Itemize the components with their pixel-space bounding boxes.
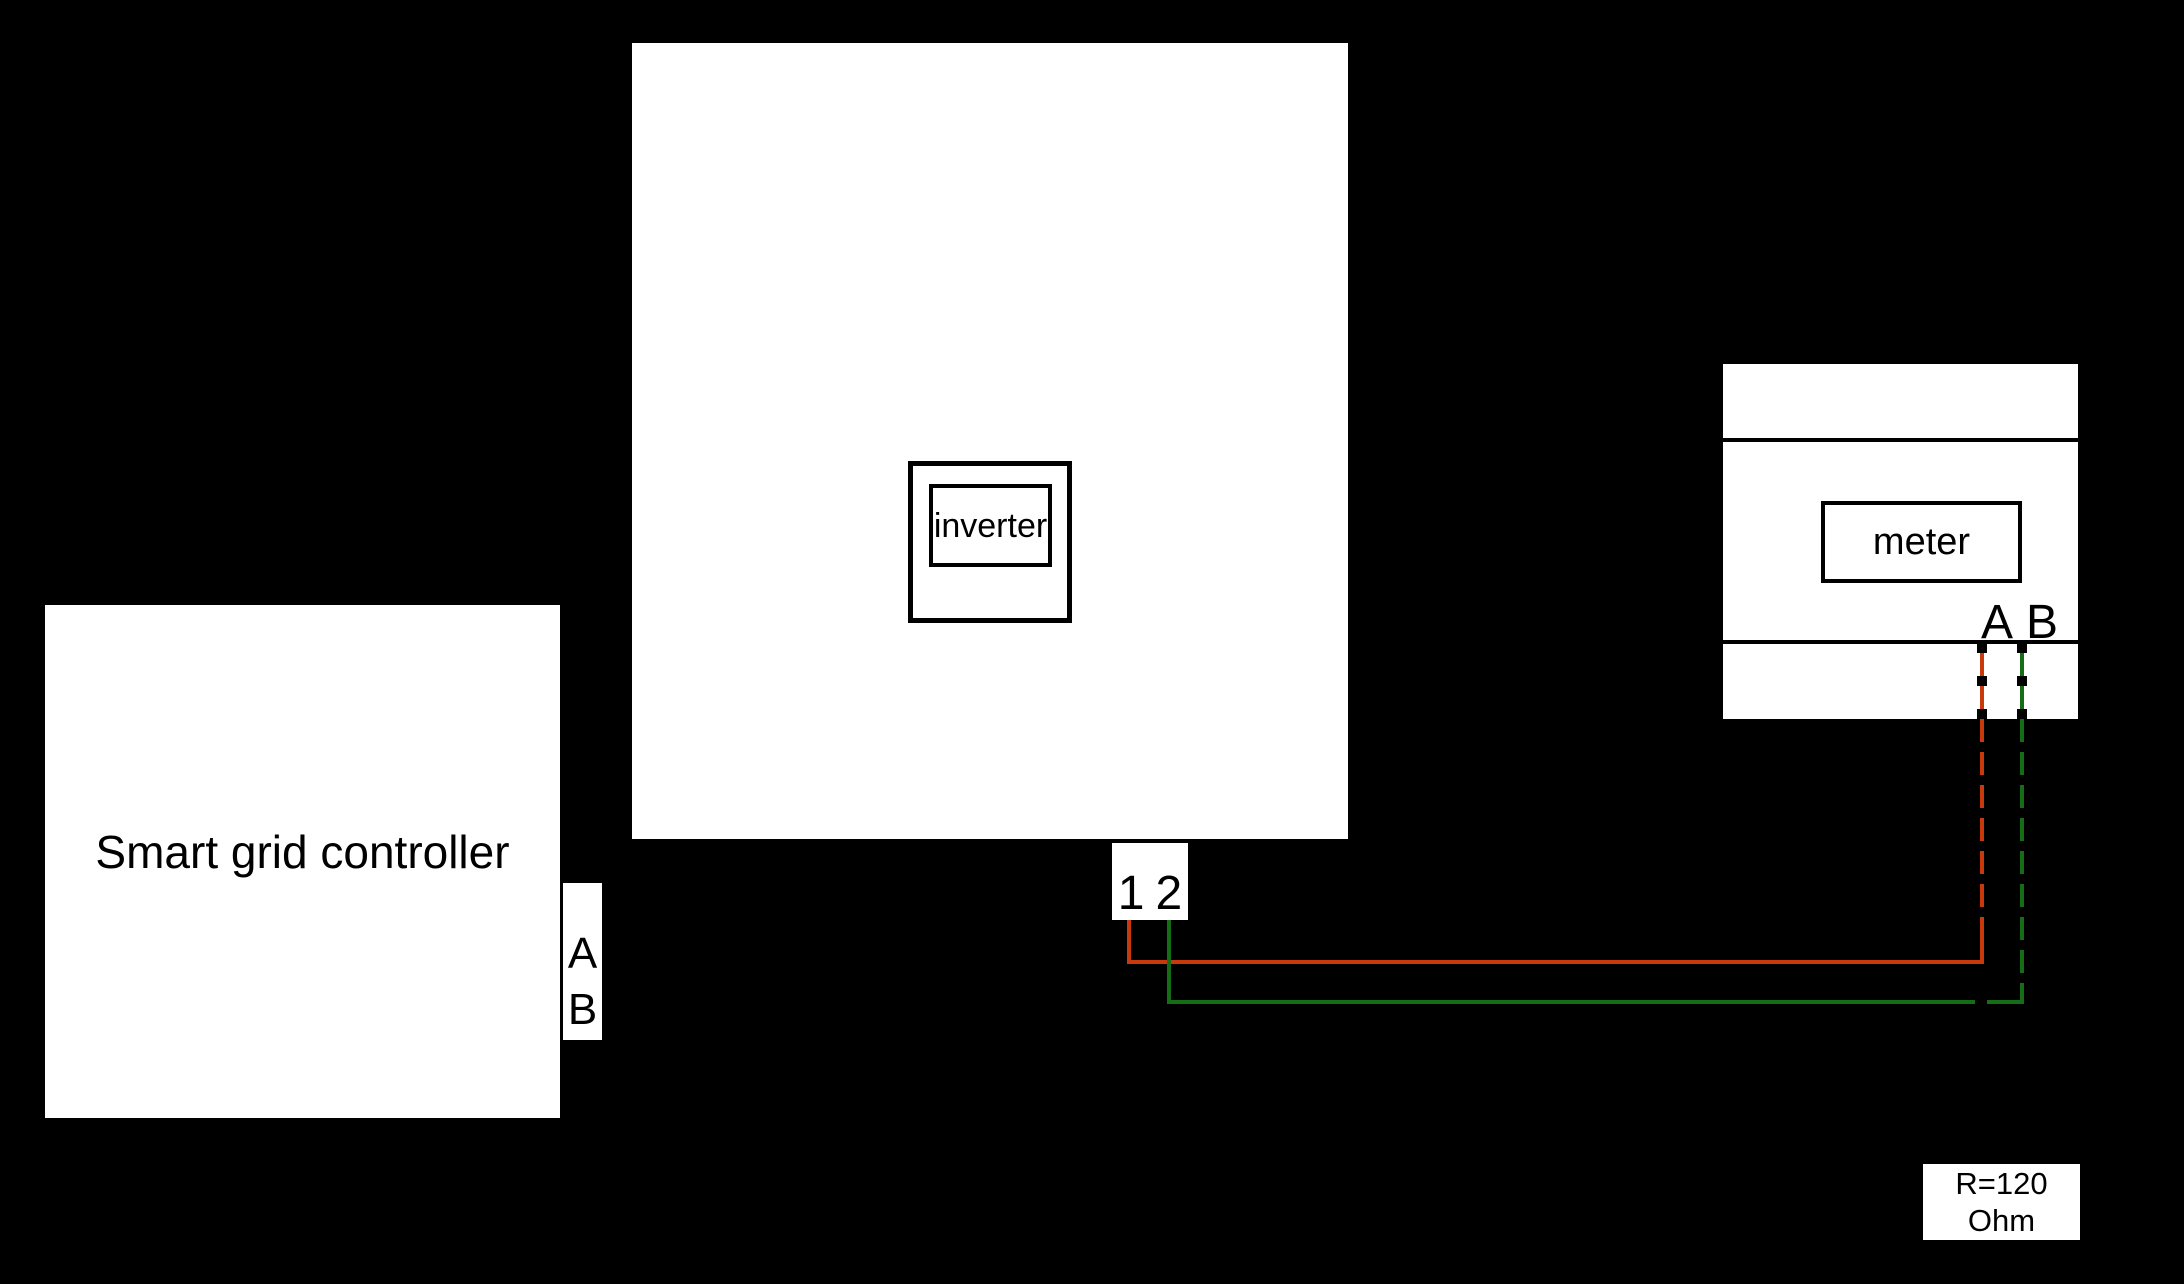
- termination-resistor-note: R=120 Ohm: [1923, 1164, 2080, 1240]
- array-box: [632, 43, 1348, 839]
- wire-a-vertical-dashed: [1977, 643, 1987, 935]
- wiring-diagram-canvas: Smart grid controller A B inverter 1 2 m…: [0, 0, 2184, 1284]
- wire-b-stub: [1167, 920, 1171, 1004]
- meter-label: meter: [1873, 523, 1970, 561]
- inverter-label: inverter: [934, 509, 1047, 543]
- controller-port-a-label: A: [563, 932, 602, 976]
- meter-port-a-label: A: [1977, 599, 2017, 647]
- wire-a-horizontal: [1127, 960, 1984, 964]
- wire-a-corner: [1980, 935, 1984, 964]
- terminal-1-label: 1: [1118, 870, 1145, 918]
- inverter-box: inverter: [929, 484, 1052, 567]
- resistor-value-line2: Ohm: [1968, 1202, 2035, 1239]
- meter-port-b-label: B: [2022, 599, 2062, 647]
- controller-port-b-label: B: [563, 988, 602, 1032]
- smart-grid-controller-label: Smart grid controller: [45, 829, 560, 875]
- smart-grid-controller-box: Smart grid controller: [45, 605, 560, 1118]
- wire-b-vertical-dashed: [2017, 643, 2027, 985]
- wire-b-horizontal: [1167, 1000, 2024, 1004]
- meter-divider-top: [1723, 438, 2078, 442]
- resistor-value-line1: R=120: [1955, 1165, 2047, 1202]
- wire-crossing-mark: [1975, 1000, 1987, 1004]
- meter-box: meter: [1821, 501, 2022, 583]
- wire-b-corner: [2020, 985, 2024, 1004]
- terminal-block: 1 2: [1112, 843, 1188, 920]
- terminal-2-label: 2: [1156, 870, 1183, 918]
- controller-port-strip: A B: [563, 883, 602, 1040]
- wire-a-stub: [1127, 920, 1131, 964]
